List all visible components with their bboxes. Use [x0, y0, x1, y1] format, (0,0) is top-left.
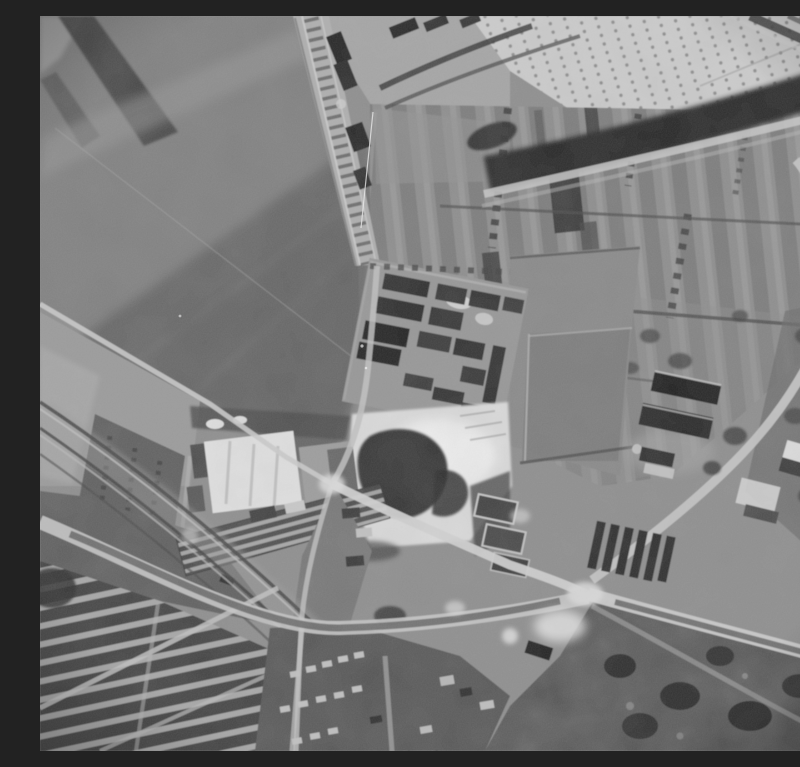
vignette	[40, 16, 800, 751]
aerial-photograph	[40, 16, 800, 751]
aerial-photo-canvas	[40, 16, 800, 751]
film-artifacts	[40, 16, 800, 751]
